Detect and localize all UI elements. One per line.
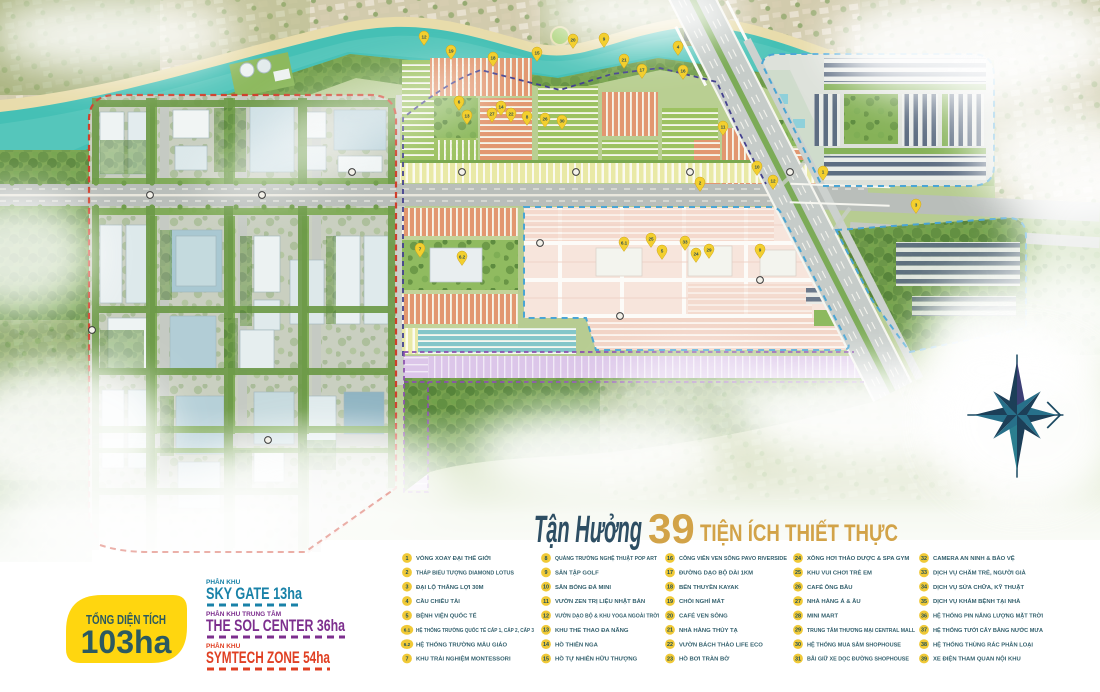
- svg-text:HỆ THỐNG TRƯỜNG QUỐC TẾ CẤP 1,: HỆ THỐNG TRƯỜNG QUỐC TẾ CẤP 1, CẤP 2, CẤ…: [416, 626, 535, 634]
- svg-text:10: 10: [543, 585, 549, 591]
- svg-text:Tận Hưởng: Tận Hưởng: [534, 509, 642, 551]
- svg-text:12: 12: [770, 178, 776, 183]
- svg-text:CAFÉ ÔNG BẦU: CAFÉ ÔNG BẦU: [807, 583, 853, 591]
- svg-text:29: 29: [706, 247, 712, 252]
- svg-text:VÒNG XOAY ĐẠI THẾ GIỚI: VÒNG XOAY ĐẠI THẾ GIỚI: [416, 554, 491, 562]
- svg-text:TIỆN ÍCH THIẾT THỰC: TIỆN ÍCH THIẾT THỰC: [700, 519, 898, 547]
- svg-text:4: 4: [406, 599, 409, 605]
- svg-text:NHÀ HÀNG Á & ÂU: NHÀ HÀNG Á & ÂU: [807, 598, 861, 605]
- svg-text:8: 8: [545, 556, 548, 562]
- svg-text:VƯỜN ZEN TRỊ LIỆU NHẬT BẢN: VƯỜN ZEN TRỊ LIỆU NHẬT BẢN: [555, 597, 645, 605]
- svg-text:HỒ THIÊN NGA: HỒ THIÊN NGA: [555, 640, 599, 648]
- svg-text:9: 9: [545, 570, 548, 576]
- svg-text:6.1: 6.1: [404, 628, 411, 633]
- svg-text:HỆ THỐNG PIN NĂNG LƯỢNG MẶT TR: HỆ THỐNG PIN NĂNG LƯỢNG MẶT TRỜI: [933, 612, 1043, 620]
- svg-text:39: 39: [921, 656, 927, 662]
- svg-text:VƯỜN DẠO BỘ & KHU YOGA NGOÀI T: VƯỜN DẠO BỘ & KHU YOGA NGOÀI TRỜI: [555, 612, 659, 620]
- svg-text:QUẢNG TRƯỜNG NGHỆ THUẬT POP AR: QUẢNG TRƯỜNG NGHỆ THUẬT POP ART: [555, 554, 657, 562]
- svg-text:XÔNG HƠI THẢO DƯỢC & SPA GYM: XÔNG HƠI THẢO DƯỢC & SPA GYM: [807, 554, 909, 562]
- svg-text:ĐẠI LỘ THẮNG LỢI 30M: ĐẠI LỘ THẮNG LỢI 30M: [416, 583, 484, 591]
- svg-text:SYMTECH ZONE 54ha: SYMTECH ZONE 54ha: [206, 648, 330, 667]
- svg-text:36: 36: [921, 613, 927, 619]
- svg-text:TRUNG TÂM THƯƠNG MẠI CENTRAL M: TRUNG TÂM THƯƠNG MẠI CENTRAL MALL: [807, 627, 915, 634]
- svg-text:21: 21: [621, 57, 627, 62]
- svg-text:6: 6: [458, 99, 461, 104]
- svg-text:38: 38: [921, 642, 927, 648]
- svg-text:1: 1: [822, 169, 825, 174]
- svg-text:DỊCH VỤ KHÁM BỆNH TẠI NHÀ: DỊCH VỤ KHÁM BỆNH TẠI NHÀ: [933, 597, 1021, 605]
- svg-text:CAMERA AN NINH & BẢO VỆ: CAMERA AN NINH & BẢO VỆ: [933, 554, 1015, 562]
- svg-text:13: 13: [543, 628, 549, 634]
- svg-text:10: 10: [754, 164, 760, 169]
- svg-text:NHÀ HÀNG THỦY TẠ: NHÀ HÀNG THỦY TẠ: [679, 627, 739, 634]
- svg-text:THÁP BIỂU TƯỢNG DIAMOND LOTUS: THÁP BIỂU TƯỢNG DIAMOND LOTUS: [416, 570, 514, 577]
- svg-text:DỊCH VỤ SỬA CHỮA, KỸ THUẬT: DỊCH VỤ SỬA CHỮA, KỸ THUẬT: [933, 584, 1024, 591]
- svg-text:11: 11: [721, 124, 726, 129]
- svg-text:13: 13: [464, 113, 470, 118]
- svg-text:30: 30: [795, 642, 801, 648]
- svg-text:KHU TRẢI NGHIỆM MONTESSORI: KHU TRẢI NGHIỆM MONTESSORI: [416, 655, 511, 663]
- svg-text:BÃI GIỮ XE DỌC ĐƯỜNG SHOPHOUSE: BÃI GIỮ XE DỌC ĐƯỜNG SHOPHOUSE: [807, 655, 909, 663]
- svg-text:27: 27: [489, 111, 495, 116]
- svg-text:24: 24: [795, 556, 801, 562]
- svg-text:17: 17: [639, 67, 645, 72]
- svg-text:9: 9: [759, 247, 762, 252]
- svg-text:HỆ THỐNG TƯỚI CÂY BẰNG NƯỚC MƯ: HỆ THỐNG TƯỚI CÂY BẰNG NƯỚC MƯA: [933, 626, 1044, 634]
- svg-text:32: 32: [921, 556, 927, 562]
- svg-text:18: 18: [490, 55, 496, 60]
- svg-text:34: 34: [921, 585, 927, 591]
- svg-text:9: 9: [603, 36, 606, 41]
- svg-text:25: 25: [795, 570, 801, 576]
- svg-text:20: 20: [667, 613, 673, 619]
- svg-text:14: 14: [543, 642, 549, 648]
- svg-text:CÔNG VIÊN VEN SÔNG PAVO RIVERS: CÔNG VIÊN VEN SÔNG PAVO RIVERSIDE: [679, 554, 787, 562]
- svg-text:4: 4: [677, 44, 680, 49]
- svg-text:BỆNH VIỆN QUỐC TẾ: BỆNH VIỆN QUỐC TẾ: [416, 612, 477, 620]
- svg-text:CAFÉ VEN SÔNG: CAFÉ VEN SÔNG: [679, 612, 728, 620]
- svg-text:6.1: 6.1: [621, 240, 628, 245]
- svg-text:18: 18: [667, 585, 673, 591]
- svg-text:SÂN BÓNG ĐÁ MINI: SÂN BÓNG ĐÁ MINI: [555, 583, 611, 591]
- svg-text:5: 5: [406, 613, 409, 619]
- svg-text:23: 23: [667, 656, 673, 662]
- svg-text:12: 12: [543, 613, 549, 619]
- svg-text:HỆ THỐNG THÙNG RÁC PHÂN LOẠI: HỆ THỐNG THÙNG RÁC PHÂN LOẠI: [933, 640, 1033, 648]
- svg-text:KHU THỂ THAO ĐA NĂNG: KHU THỂ THAO ĐA NĂNG: [555, 627, 629, 634]
- svg-text:39: 39: [648, 505, 695, 552]
- svg-text:CẦU CHIÊU TÀI: CẦU CHIÊU TÀI: [416, 597, 460, 605]
- svg-text:37: 37: [921, 628, 927, 634]
- svg-text:26: 26: [542, 116, 548, 121]
- svg-text:11: 11: [543, 599, 549, 605]
- svg-text:27: 27: [795, 599, 801, 605]
- svg-text:22: 22: [667, 642, 673, 648]
- svg-text:1: 1: [406, 556, 409, 562]
- svg-text:3: 3: [406, 585, 409, 591]
- svg-text:21: 21: [667, 628, 673, 634]
- svg-text:31: 31: [795, 656, 801, 662]
- svg-text:14: 14: [498, 104, 504, 109]
- svg-text:29: 29: [795, 628, 801, 634]
- svg-text:HỆ THỐNG TRƯỜNG MẪU GIÁO: HỆ THỐNG TRƯỜNG MẪU GIÁO: [416, 640, 507, 648]
- svg-text:8: 8: [526, 114, 529, 119]
- svg-text:20: 20: [570, 37, 576, 42]
- svg-text:3: 3: [915, 202, 918, 207]
- svg-text:6.2: 6.2: [404, 642, 411, 647]
- svg-text:103ha: 103ha: [81, 624, 172, 660]
- svg-text:THE SOL CENTER 36ha: THE SOL CENTER 36ha: [206, 616, 345, 635]
- svg-text:22: 22: [508, 111, 514, 116]
- svg-text:XE ĐIỆN THAM QUAN NỘI KHU: XE ĐIỆN THAM QUAN NỘI KHU: [933, 655, 1021, 663]
- svg-text:CHÒI NGHỈ MÁT: CHÒI NGHỈ MÁT: [679, 597, 725, 605]
- svg-text:33: 33: [682, 239, 688, 244]
- svg-text:HỆ THỐNG MUA SẮM SHOPHOUSE: HỆ THỐNG MUA SẮM SHOPHOUSE: [807, 640, 901, 648]
- svg-text:HỒ BƠI TRÀN BỜ: HỒ BƠI TRÀN BỜ: [679, 655, 730, 663]
- svg-text:6.2: 6.2: [459, 254, 466, 259]
- svg-text:17: 17: [667, 570, 673, 576]
- svg-text:12: 12: [421, 34, 427, 39]
- svg-text:15: 15: [534, 50, 540, 55]
- svg-text:BẾN THUYỀN KAYAK: BẾN THUYỀN KAYAK: [679, 584, 740, 591]
- svg-text:19: 19: [448, 48, 454, 53]
- svg-text:30: 30: [559, 118, 565, 123]
- svg-text:26: 26: [795, 585, 801, 591]
- svg-text:MINI MART: MINI MART: [807, 614, 838, 620]
- svg-text:VƯỜN BÁCH THẢO LIFE ECO: VƯỜN BÁCH THẢO LIFE ECO: [679, 640, 763, 648]
- svg-text:28: 28: [795, 613, 801, 619]
- svg-text:ĐƯỜNG DẠO BỘ DÀI 1KM: ĐƯỜNG DẠO BỘ DÀI 1KM: [679, 569, 753, 577]
- svg-text:33: 33: [921, 570, 927, 576]
- svg-text:15: 15: [543, 656, 549, 662]
- svg-text:HỒ TỰ NHIÊN HỮU THƯỢNG: HỒ TỰ NHIÊN HỮU THƯỢNG: [555, 655, 638, 663]
- svg-text:DỊCH VỤ CHĂM TRẺ, NGƯỜI GIÀ: DỊCH VỤ CHĂM TRẺ, NGƯỜI GIÀ: [933, 569, 1026, 577]
- svg-text:2: 2: [699, 180, 702, 185]
- svg-text:7: 7: [419, 246, 422, 251]
- svg-text:16: 16: [680, 68, 686, 73]
- svg-text:KHU VUI CHƠI TRẺ EM: KHU VUI CHƠI TRẺ EM: [807, 570, 872, 577]
- svg-text:19: 19: [667, 599, 673, 605]
- svg-text:7: 7: [406, 656, 409, 662]
- svg-text:SÂN TẬP GOLF: SÂN TẬP GOLF: [555, 570, 599, 577]
- svg-text:5: 5: [661, 248, 664, 253]
- svg-text:2: 2: [406, 570, 409, 576]
- svg-text:25: 25: [648, 236, 654, 241]
- svg-text:SKY GATE 13ha: SKY GATE 13ha: [206, 584, 302, 603]
- svg-text:24: 24: [693, 251, 699, 256]
- svg-text:16: 16: [667, 556, 673, 562]
- svg-text:35: 35: [921, 599, 927, 605]
